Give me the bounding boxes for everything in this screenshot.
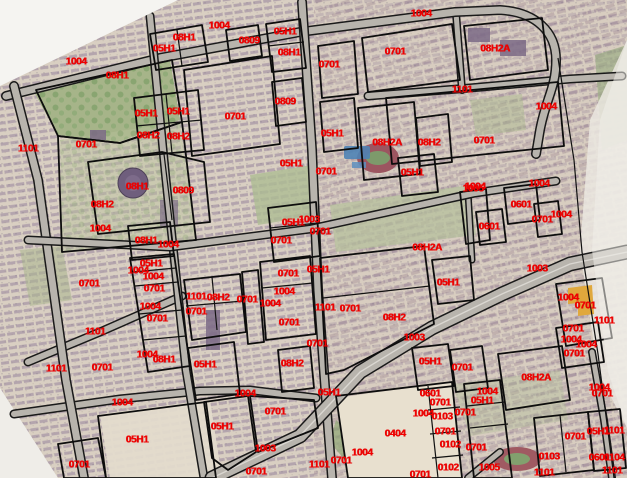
parcel-label: 1101 <box>534 468 555 478</box>
parcel-label: 0701 <box>473 136 494 147</box>
parcel-label: 0701 <box>264 407 285 418</box>
parcel-label: 1004 <box>476 387 497 398</box>
parcel-label: 05H1 <box>401 168 424 179</box>
parcel-label: 1003 <box>403 333 424 344</box>
parcel-label: 1004 <box>410 9 431 20</box>
parcel-label: 08H1 <box>153 355 176 366</box>
parcel-label: 0701 <box>409 470 430 478</box>
parcel-label: 1004 <box>142 272 163 283</box>
parcel-label: 0104 <box>603 453 624 464</box>
parcel-label: 08H2A <box>480 44 510 55</box>
parcel-label: 1101 <box>604 426 625 437</box>
parcel-label: 08H2 <box>383 313 406 324</box>
parcel-label: 0701 <box>306 339 327 350</box>
parcel-label: 05H1 <box>194 360 217 371</box>
parcel-label: 1004 <box>528 179 549 190</box>
parcel-label: 08H2 <box>137 131 160 142</box>
parcel-label: 0701 <box>68 460 89 471</box>
parcel-label: 08H2 <box>207 293 230 304</box>
parcel-label: 0701 <box>434 427 455 438</box>
parcel-label: 1004 <box>136 350 157 361</box>
parcel-label: 05H1 <box>135 109 158 120</box>
parcel-label: 1004 <box>259 299 280 310</box>
parcel-label: 0701 <box>562 324 583 335</box>
parcel-label: 05H1 <box>282 218 305 229</box>
parcel-label: 0701 <box>315 167 336 178</box>
parcel-label: 0701 <box>185 307 206 318</box>
parcel-label: 1004 <box>139 302 160 313</box>
parcel-label: 1101 <box>85 327 106 338</box>
satellite-map-container[interactable]: 10041004100408H105H105H1080908H108H2A070… <box>0 0 627 478</box>
parcel-label: 0601 <box>588 453 609 464</box>
parcel-label: 0701 <box>591 389 612 400</box>
parcel-label: 0701 <box>531 215 552 226</box>
parcel-label: 0701 <box>224 112 245 123</box>
parcel-label: 1101 <box>309 460 330 471</box>
parcel-label: 0701 <box>429 398 450 409</box>
parcel-label: 0701 <box>574 301 595 312</box>
parcel-label: 0701 <box>318 60 339 71</box>
parcel-label: 0809 <box>238 36 259 47</box>
parcel-label: 1004 <box>111 398 132 409</box>
parcel-label: 1004 <box>535 102 556 113</box>
parcel-label: 0701 <box>384 47 405 58</box>
parcel-label: 0701 <box>146 314 167 325</box>
parcel-label: 08H1 <box>126 182 149 193</box>
parcel-label: 05H1 <box>274 27 297 38</box>
parcel-label: 08H2A <box>412 243 442 254</box>
parcel-label: 05H1 <box>437 278 460 289</box>
parcel-label: 08H1 <box>135 236 158 247</box>
parcel-label: 1101 <box>315 303 336 314</box>
parcel-label: 1004 <box>89 224 110 235</box>
parcel-label: 1004 <box>351 448 372 459</box>
parcel-label: 1004 <box>575 340 596 351</box>
parcel-label: 0701 <box>309 227 330 238</box>
parcel-label: 0701 <box>465 443 486 454</box>
parcel-label: 0102 <box>439 440 460 451</box>
parcel-label: 08H2 <box>281 359 304 370</box>
parcel-label: 0701 <box>339 304 360 315</box>
parcel-label: 0701 <box>75 140 96 151</box>
parcel-label: 05H1 <box>321 129 344 140</box>
parcel-label: 0701 <box>451 363 472 374</box>
parcel-label: 1101 <box>594 316 615 327</box>
parcel-label: 0701 <box>564 432 585 443</box>
parcel-label: 08H2A <box>372 138 402 149</box>
parcel-label: 1004 <box>412 409 433 420</box>
parcel-labels-layer: 10041004100408H105H105H1080908H108H2A070… <box>0 0 627 478</box>
parcel-label: 0103 <box>431 412 452 423</box>
parcel-label: 1004 <box>127 266 148 277</box>
parcel-label: 1004 <box>157 240 178 251</box>
parcel-label: 08H2 <box>418 138 441 149</box>
parcel-label: 1004 <box>560 335 581 346</box>
parcel-label: 05H1 <box>280 159 303 170</box>
parcel-label: 1004 <box>588 383 609 394</box>
parcel-label: 0701 <box>270 236 291 247</box>
parcel-label: 1004 <box>65 57 86 68</box>
parcel-label: 08H2 <box>167 132 190 143</box>
parcel-label: 0809 <box>274 97 295 108</box>
parcel-label: 1101 <box>602 466 623 477</box>
parcel-label: 0102 <box>437 463 458 474</box>
parcel-label: 1004 <box>464 182 485 193</box>
parcel-label: 05H1 <box>471 396 494 407</box>
parcel-label: 0103 <box>538 452 559 463</box>
parcel-label: 0701 <box>245 467 266 478</box>
parcel-label: 08H1 <box>278 48 301 59</box>
parcel-label: 0701 <box>278 318 299 329</box>
parcel-label: 0701 <box>78 279 99 290</box>
parcel-label: 0701 <box>91 363 112 374</box>
parcel-label: 1004 <box>208 21 229 32</box>
parcel-label: 1101 <box>186 292 207 303</box>
parcel-label: 0701 <box>236 295 257 306</box>
parcel-label: 05H1 <box>126 435 149 446</box>
parcel-label: 0601 <box>510 200 531 211</box>
parcel-label: 0701 <box>330 456 351 467</box>
parcel-label: 1004 <box>550 210 571 221</box>
parcel-label: 1101 <box>452 85 473 96</box>
parcel-label: 0404 <box>384 429 405 440</box>
parcel-label: 05H1 <box>167 107 190 118</box>
parcel-label: 1003 <box>254 444 275 455</box>
parcel-label: 05H1 <box>153 44 176 55</box>
parcel-label: 0701 <box>454 408 475 419</box>
parcel-label: 1004 <box>234 389 255 400</box>
parcel-label: 0809 <box>172 186 193 197</box>
parcel-label: 1101 <box>46 364 67 375</box>
parcel-label: 0601 <box>419 389 440 400</box>
parcel-label: 05H1 <box>419 357 442 368</box>
parcel-label: 05H1 <box>140 259 163 270</box>
parcel-label: 05H1 <box>211 422 234 433</box>
parcel-label: 05H1 <box>318 388 341 399</box>
parcel-label: 08H1 <box>173 33 196 44</box>
parcel-label: 0701 <box>277 269 298 280</box>
parcel-label: 05H1 <box>587 427 610 438</box>
parcel-label: 08H1 <box>106 71 129 82</box>
parcel-label: 1004 <box>273 287 294 298</box>
parcel-label: 1003 <box>526 264 547 275</box>
parcel-label: 0701 <box>563 349 584 360</box>
parcel-label: 1005 <box>462 184 483 195</box>
parcel-label: 1101 <box>18 144 39 155</box>
parcel-label: 08H2A <box>521 373 551 384</box>
parcel-label: 05H1 <box>307 265 330 276</box>
parcel-label: 0601 <box>478 222 499 233</box>
parcel-label: 0701 <box>143 284 164 295</box>
parcel-label: 1003 <box>298 215 319 226</box>
parcel-label: 1005 <box>478 463 499 474</box>
parcel-label: 1004 <box>557 293 578 304</box>
parcel-label: 08H2 <box>91 200 114 211</box>
